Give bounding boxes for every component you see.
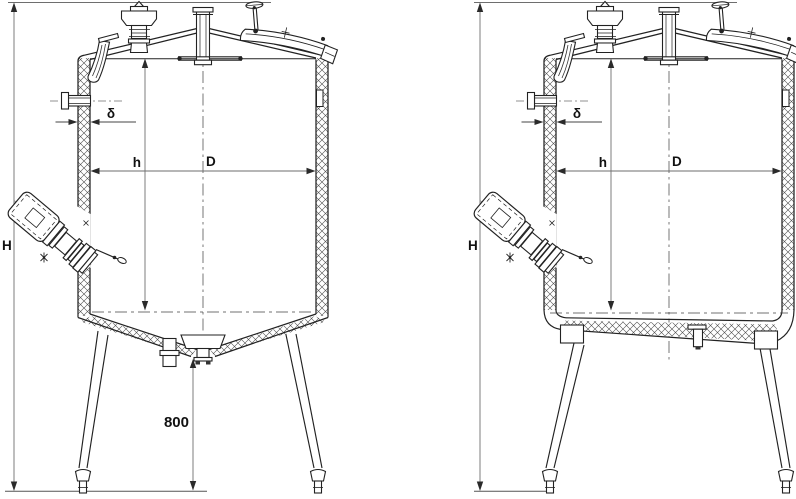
label-leg-height: 800 — [164, 414, 189, 431]
label-diameter: D — [206, 154, 216, 169]
technical-drawing-canvas: H h D δ 800 — [0, 0, 796, 499]
left-front-foot — [76, 470, 91, 494]
label-inner-height: h — [133, 155, 141, 170]
right-tank-common — [470, 0, 796, 491]
drawing-page: H h D δ 800 — [0, 0, 796, 499]
right-front-foot — [543, 470, 558, 494]
label-overall-height: H — [2, 238, 12, 253]
label-wall-thickness: δ — [107, 106, 115, 121]
leg-mount-pad-right — [755, 331, 778, 349]
label-inner-height: h — [599, 155, 607, 170]
label-diameter: D — [672, 154, 682, 169]
dimension-leg-height — [190, 359, 196, 491]
right-tank-legs — [546, 343, 790, 468]
right-rear-foot — [779, 470, 794, 494]
label-wall-thickness: δ — [573, 106, 581, 121]
bottom-outlet-pipe — [160, 339, 179, 367]
center-drain-valve — [194, 349, 212, 365]
label-overall-height: H — [468, 238, 478, 253]
left-rear-foot — [311, 470, 326, 494]
bottom-reinforcement-plate — [181, 335, 225, 349]
left-tank-view: H h D δ 800 — [2, 0, 344, 493]
leg-mount-pad-left — [561, 325, 584, 343]
right-tank-view: H h D δ — [468, 0, 796, 493]
